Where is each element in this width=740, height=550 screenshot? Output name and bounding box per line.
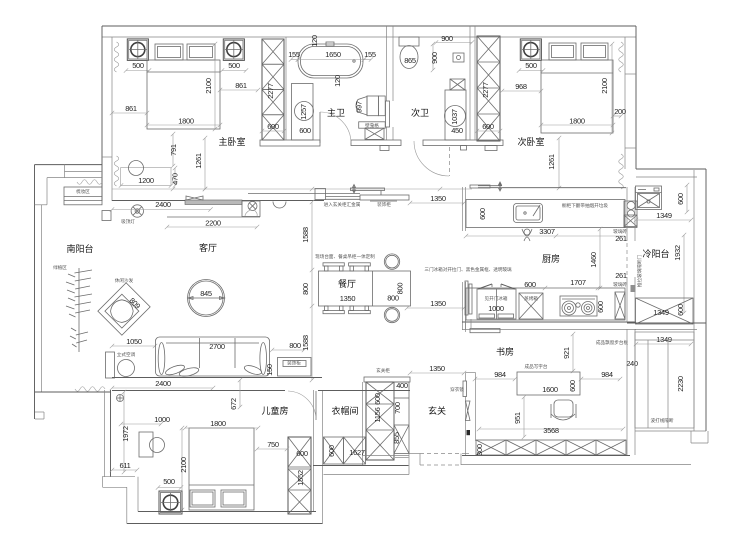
svg-text:1552: 1552 (296, 470, 305, 486)
svg-text:冷阳台: 冷阳台 (642, 248, 669, 259)
svg-text:1707: 1707 (570, 278, 586, 287)
svg-text:3568: 3568 (543, 426, 559, 435)
svg-text:成品飘窗步台板: 成品飘窗步台板 (596, 339, 629, 346)
svg-text:600: 600 (524, 280, 536, 289)
svg-text:600: 600 (299, 126, 311, 135)
svg-text:791: 791 (169, 144, 178, 156)
svg-text:600: 600 (327, 445, 336, 457)
svg-text:984: 984 (601, 370, 613, 379)
svg-text:500: 500 (163, 477, 175, 486)
svg-text:861: 861 (235, 81, 247, 90)
svg-text:1349: 1349 (656, 335, 672, 344)
svg-text:次卫: 次卫 (411, 107, 429, 118)
svg-text:玄关柜: 玄关柜 (376, 367, 390, 374)
svg-text:600: 600 (596, 301, 605, 313)
svg-text:120: 120 (333, 75, 342, 87)
svg-text:蒸烤箱: 蒸烤箱 (524, 295, 538, 302)
svg-text:推拉玻璃隔断门: 推拉玻璃隔断门 (636, 255, 643, 288)
svg-text:700: 700 (393, 402, 402, 414)
svg-text:吸顶灯: 吸顶灯 (121, 218, 135, 225)
svg-text:1800: 1800 (210, 419, 226, 428)
svg-text:1000: 1000 (154, 415, 170, 424)
svg-text:1350: 1350 (430, 299, 446, 308)
svg-text:2100: 2100 (179, 457, 188, 473)
svg-text:2277: 2277 (481, 82, 490, 98)
svg-text:984: 984 (494, 370, 506, 379)
svg-text:1349: 1349 (653, 308, 669, 317)
svg-text:装饰柜: 装饰柜 (287, 360, 301, 367)
svg-text:1800: 1800 (178, 117, 194, 126)
svg-text:1350: 1350 (429, 364, 445, 373)
svg-text:立式空调: 立式空调 (117, 351, 136, 358)
svg-text:500: 500 (228, 61, 240, 70)
svg-text:800: 800 (301, 283, 310, 295)
svg-text:厨房: 厨房 (542, 253, 560, 264)
svg-text:2277: 2277 (266, 83, 275, 99)
svg-text:2700: 2700 (209, 342, 225, 351)
svg-text:600: 600 (296, 449, 308, 458)
svg-text:装饰柜: 装饰柜 (377, 201, 391, 208)
svg-text:500: 500 (132, 61, 144, 70)
svg-text:865: 865 (404, 56, 416, 65)
svg-text:800: 800 (396, 283, 405, 295)
svg-text:玻璃砖: 玻璃砖 (613, 281, 627, 288)
svg-text:三门冰箱对开拉门、黑色金属框、透明玻璃: 三门冰箱对开拉门、黑色金属框、透明玻璃 (424, 266, 512, 273)
svg-text:261: 261 (615, 234, 627, 243)
svg-text:书房: 书房 (496, 346, 514, 357)
svg-text:1037: 1037 (450, 109, 459, 125)
svg-text:穿衣镜: 穿衣镜 (450, 386, 464, 393)
svg-text:橱柜下翻带抽烟开垃圾: 橱柜下翻带抽烟开垃圾 (562, 202, 608, 209)
svg-text:见开门冰箱: 见开门冰箱 (485, 295, 508, 302)
svg-text:玻璃砖: 玻璃砖 (613, 228, 627, 235)
svg-text:1588: 1588 (301, 227, 310, 243)
svg-text:611: 611 (119, 461, 130, 470)
svg-text:1800: 1800 (569, 117, 585, 126)
svg-text:855: 855 (392, 432, 401, 444)
svg-text:240: 240 (626, 359, 638, 368)
svg-text:绿植区: 绿植区 (53, 264, 67, 271)
svg-text:400: 400 (396, 381, 408, 390)
svg-text:800: 800 (289, 341, 301, 350)
svg-text:2200: 2200 (205, 219, 221, 228)
svg-text:200: 200 (614, 107, 626, 116)
svg-text:1257: 1257 (299, 104, 308, 120)
svg-text:主卧室: 主卧室 (218, 136, 245, 147)
svg-text:150: 150 (265, 364, 274, 376)
svg-text:1050: 1050 (126, 337, 142, 346)
svg-text:1156: 1156 (373, 407, 382, 422)
svg-text:900: 900 (430, 52, 439, 64)
svg-text:南阳台: 南阳台 (66, 243, 93, 254)
svg-text:1972: 1972 (121, 426, 130, 442)
svg-text:3307: 3307 (539, 227, 555, 236)
svg-text:衣帽间: 衣帽间 (331, 405, 358, 416)
svg-text:672: 672 (229, 398, 238, 410)
svg-text:261: 261 (615, 271, 627, 280)
svg-text:845: 845 (200, 289, 212, 298)
svg-text:861: 861 (125, 104, 137, 113)
svg-text:进入玄关柜汇金属: 进入玄关柜汇金属 (324, 201, 361, 208)
svg-text:900: 900 (441, 34, 453, 43)
svg-text:1460: 1460 (589, 252, 598, 268)
svg-text:玄关: 玄关 (428, 405, 446, 416)
svg-text:1261: 1261 (194, 153, 203, 169)
svg-text:1350: 1350 (430, 194, 446, 203)
svg-text:1650: 1650 (325, 50, 341, 59)
svg-text:600: 600 (373, 393, 382, 405)
svg-text:155: 155 (364, 50, 376, 59)
svg-text:客厅: 客厅 (199, 242, 217, 253)
svg-text:1588: 1588 (301, 335, 310, 351)
svg-text:997: 997 (355, 101, 364, 113)
svg-text:休闲沙发: 休闲沙发 (115, 277, 134, 284)
svg-text:2100: 2100 (600, 78, 609, 94)
svg-text:儿童房: 儿童房 (261, 405, 288, 416)
svg-text:餐厅: 餐厅 (338, 278, 356, 289)
svg-text:梳妆区: 梳妆区 (76, 188, 90, 195)
svg-text:2400: 2400 (155, 379, 171, 388)
svg-text:921: 921 (562, 347, 571, 359)
svg-text:次卧室: 次卧室 (517, 136, 544, 147)
svg-text:951: 951 (513, 412, 522, 424)
svg-text:600: 600 (568, 380, 577, 392)
svg-text:155: 155 (288, 50, 300, 59)
svg-text:120: 120 (310, 35, 319, 47)
svg-text:500: 500 (525, 61, 537, 70)
svg-text:600: 600 (482, 122, 494, 131)
svg-text:波打线隔断: 波打线隔断 (651, 417, 674, 424)
svg-text:成品写字台: 成品写字台 (525, 363, 548, 370)
svg-text:300: 300 (475, 444, 484, 456)
svg-text:1350: 1350 (340, 294, 356, 303)
svg-text:750: 750 (267, 440, 279, 449)
svg-text:1349: 1349 (656, 211, 672, 220)
svg-text:600: 600 (267, 122, 279, 131)
svg-text:现场台面、餐桌吊柜一体定制: 现场台面、餐桌吊柜一体定制 (315, 253, 375, 260)
svg-text:2230: 2230 (676, 376, 685, 392)
svg-text:600: 600 (478, 208, 487, 220)
svg-text:1000: 1000 (488, 304, 504, 313)
svg-text:1932: 1932 (673, 245, 682, 261)
svg-text:470: 470 (171, 173, 180, 185)
svg-text:1261: 1261 (547, 154, 556, 170)
svg-text:450: 450 (451, 126, 463, 135)
svg-text:1600: 1600 (542, 385, 558, 394)
svg-text:600: 600 (676, 193, 685, 205)
svg-text:1200: 1200 (138, 176, 154, 185)
svg-text:2100: 2100 (204, 78, 213, 94)
svg-text:600: 600 (676, 304, 685, 316)
svg-text:968: 968 (515, 82, 527, 91)
svg-text:2400: 2400 (155, 200, 171, 209)
